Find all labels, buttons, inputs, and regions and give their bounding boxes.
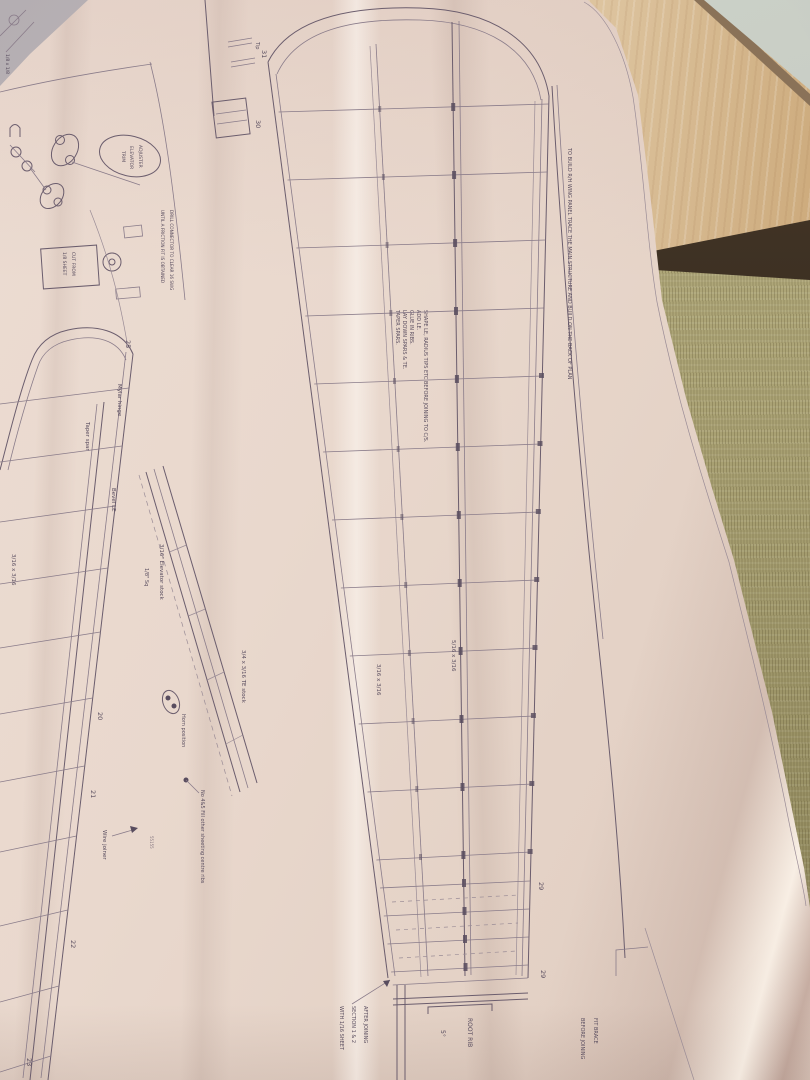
photo-scene: TO BUILD R/H WING PANEL TRACE THE MAIN S… <box>0 0 810 1080</box>
photo-vignette <box>0 0 810 1080</box>
